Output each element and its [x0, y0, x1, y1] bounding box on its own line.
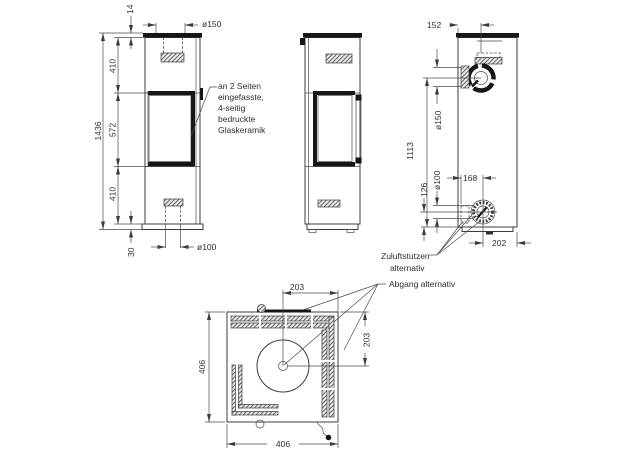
side-upper-vent	[326, 54, 352, 63]
dim-depth: 406	[197, 360, 207, 374]
front-air-collar	[164, 199, 183, 206]
front-view: 1436 410 572 410 14 30 ø150 ø100 an 2	[93, 4, 266, 257]
dim-total-height: 1436	[93, 121, 103, 140]
front-door-hinge	[200, 88, 203, 100]
side-plinth	[307, 224, 358, 230]
side-lower-vent	[318, 200, 340, 207]
dim-flue-height: 1113	[405, 142, 415, 160]
technical-drawing-page: 1436 410 572 410 14 30 ø150 ø100 an 2	[0, 0, 624, 460]
dim-upper-section: 410	[108, 59, 118, 73]
dim-width: 406	[276, 439, 290, 449]
side-glass-door	[318, 96, 352, 162]
dim-flue-diameter-front: ø150	[202, 19, 222, 29]
rear-flue-collar	[475, 58, 502, 65]
side-top-plate	[303, 33, 362, 38]
front-plinth	[142, 224, 203, 230]
top-knob	[258, 305, 266, 313]
dim-air-diameter-rear: ø100	[432, 170, 442, 190]
dim-glass-section: 572	[108, 123, 118, 137]
dim-air-offset-left: 168	[463, 173, 477, 183]
top-cable	[317, 422, 327, 436]
front-glass-door	[149, 96, 191, 162]
label-flue-alt: Abgang alternativ	[389, 279, 456, 289]
dim-top-plate: 14	[125, 4, 135, 14]
front-flue-collar	[161, 53, 184, 62]
rear-side-flue-stub	[461, 66, 469, 88]
top-view: 203 203 406 406	[197, 282, 372, 449]
dim-lower-section: 410	[108, 187, 118, 201]
dim-flue-offset: 152	[427, 20, 441, 30]
rear-air-stub-alt	[461, 206, 469, 223]
glass-note-line2: eingefasste,	[218, 92, 264, 102]
glass-note-line3: 4-seitig	[218, 103, 246, 113]
dim-air-height: 126	[419, 183, 429, 197]
dim-center-from-right: 203	[290, 282, 304, 292]
glass-note-line1: an 2 Seiten	[218, 81, 261, 91]
dim-air-diameter-front: ø100	[197, 242, 217, 252]
rear-foot	[486, 232, 493, 235]
dim-air-offset-right: 202	[492, 238, 506, 248]
label-air-inlet-line2: alternativ	[390, 263, 425, 273]
dim-base-height: 30	[126, 247, 136, 257]
top-door-handle	[256, 420, 264, 428]
label-air-inlet-line1: Zuluftstutzen	[381, 251, 430, 261]
glass-note-line5: Glaskeramik	[218, 125, 266, 135]
rear-top-plate	[456, 33, 519, 38]
side-rear-flue-stub	[300, 38, 305, 45]
front-top-plate	[143, 33, 202, 38]
dim-center-from-back: 203	[362, 333, 372, 347]
glass-note-line4: bedruckte	[218, 114, 256, 124]
rear-view: 152 ø150 1113 126 ø100 168 202	[284, 20, 531, 365]
dim-flue-diameter-rear: ø150	[433, 110, 443, 130]
side-view	[300, 33, 362, 233]
stove-dimension-drawing: 1436 410 572 410 14 30 ø150 ø100 an 2	[0, 0, 624, 460]
